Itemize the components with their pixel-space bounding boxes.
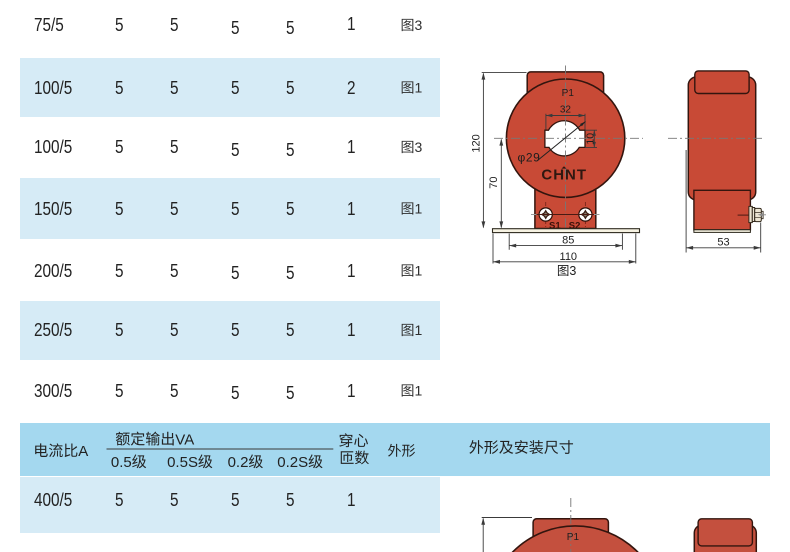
- svg-text:3: 3: [415, 17, 423, 33]
- svg-text:1: 1: [415, 383, 423, 399]
- svg-text:1: 1: [415, 263, 423, 279]
- svg-text:1: 1: [415, 201, 423, 217]
- svg-text:0.2S: 0.2S: [277, 454, 308, 471]
- svg-text:1: 1: [415, 80, 423, 96]
- svg-text:A: A: [78, 443, 88, 460]
- svg-text:1: 1: [415, 322, 423, 338]
- svg-text:0.2: 0.2: [228, 454, 249, 471]
- svg-text:VA: VA: [175, 431, 194, 448]
- svg-text:3: 3: [569, 264, 576, 278]
- svg-text:3: 3: [415, 139, 423, 155]
- svg-text:0.5S: 0.5S: [167, 454, 198, 471]
- svg-text:0.5: 0.5: [111, 454, 132, 471]
